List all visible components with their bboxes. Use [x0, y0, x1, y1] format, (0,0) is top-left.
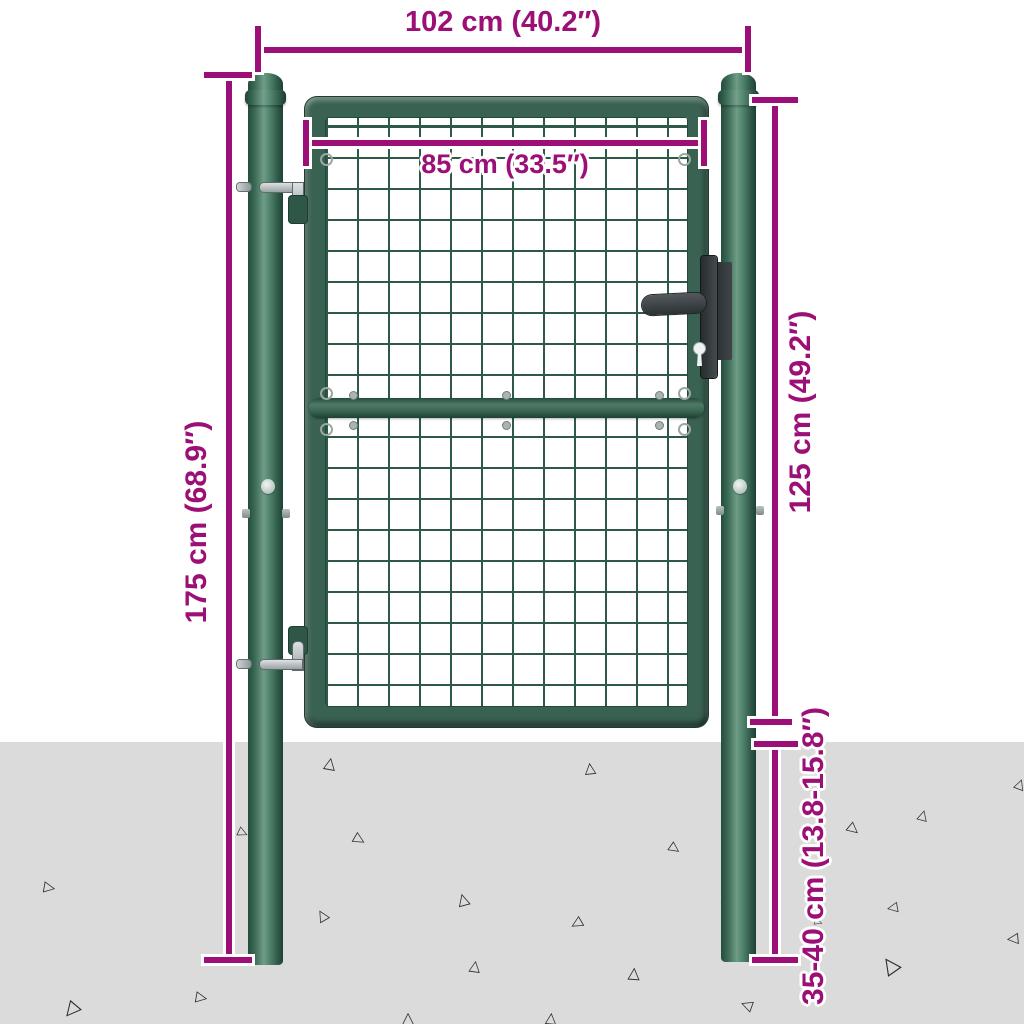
- mesh-clip: [656, 392, 663, 399]
- gate-middle-rail: [309, 398, 704, 418]
- mesh-clip: [350, 392, 357, 399]
- ground-triangle: △: [402, 1010, 414, 1024]
- dim-line-total-width: [258, 47, 748, 53]
- gate-handle: [642, 292, 707, 315]
- right-post-bolt-hole: [733, 479, 747, 494]
- dim-label-gate-height: 125 cm (49.2″): [784, 311, 818, 514]
- ground-triangle: △: [194, 991, 211, 1005]
- lock-plate: [701, 256, 717, 378]
- dim-cap: [752, 97, 798, 103]
- dim-line-gate-width: [306, 140, 704, 146]
- left-post-bolt-right: [282, 509, 290, 518]
- mesh-clip-ring: [320, 387, 333, 400]
- mesh-clip: [656, 422, 663, 429]
- ground-triangle: △: [545, 1010, 558, 1024]
- dim-line-gate-height: [772, 100, 778, 722]
- right-post: [721, 73, 756, 962]
- dim-cap: [204, 957, 252, 963]
- mesh-clip-ring: [678, 387, 691, 400]
- right-post-bolt-left: [716, 506, 724, 515]
- dim-label-post-height: 175 cm (68.9″): [180, 421, 214, 624]
- dim-label-total-width: 102 cm (40.2″): [258, 6, 748, 39]
- mesh-clip: [503, 422, 510, 429]
- gate-frame: [305, 97, 708, 727]
- lock-keeper-plate: [715, 262, 732, 360]
- top-hinge-block: [289, 196, 307, 223]
- mesh-clip: [503, 392, 510, 399]
- left-post-cap-ring: [245, 90, 286, 105]
- dim-cap: [204, 72, 252, 78]
- ground-triangle: △: [42, 881, 59, 895]
- left-post-bolt-left: [242, 509, 250, 518]
- mesh-clip-ring: [678, 423, 691, 436]
- dim-label-gate-width: 85 cm (33.5″): [306, 149, 704, 180]
- mesh-clip: [350, 422, 357, 429]
- dim-cap: [754, 741, 798, 747]
- dim-cap: [752, 957, 798, 963]
- gate-dimension-diagram: △△△△△△△△△△△△△△△△△△△△△△△△: [0, 0, 1024, 1024]
- ground-triangle: △: [1004, 933, 1020, 946]
- right-post-bolt-right: [756, 506, 764, 515]
- dim-cap: [750, 719, 792, 725]
- ground-triangle: △: [627, 965, 640, 982]
- bottom-hinge-arm: [260, 660, 302, 669]
- dim-line-post-height: [226, 75, 232, 961]
- ground-triangle: △: [468, 958, 482, 974]
- dim-label-ground-depth: 35-40 cm (13.8-15.8″): [797, 707, 831, 1005]
- left-post: [248, 73, 283, 965]
- ground-triangle: △: [583, 760, 596, 776]
- bottom-hinge-bolt: [237, 660, 251, 668]
- mesh-clip-ring: [320, 423, 333, 436]
- top-hinge-bolt: [237, 183, 251, 191]
- left-post-bolt-hole: [261, 479, 275, 494]
- dim-line-ground-depth: [772, 744, 778, 961]
- ground: [0, 742, 1024, 1024]
